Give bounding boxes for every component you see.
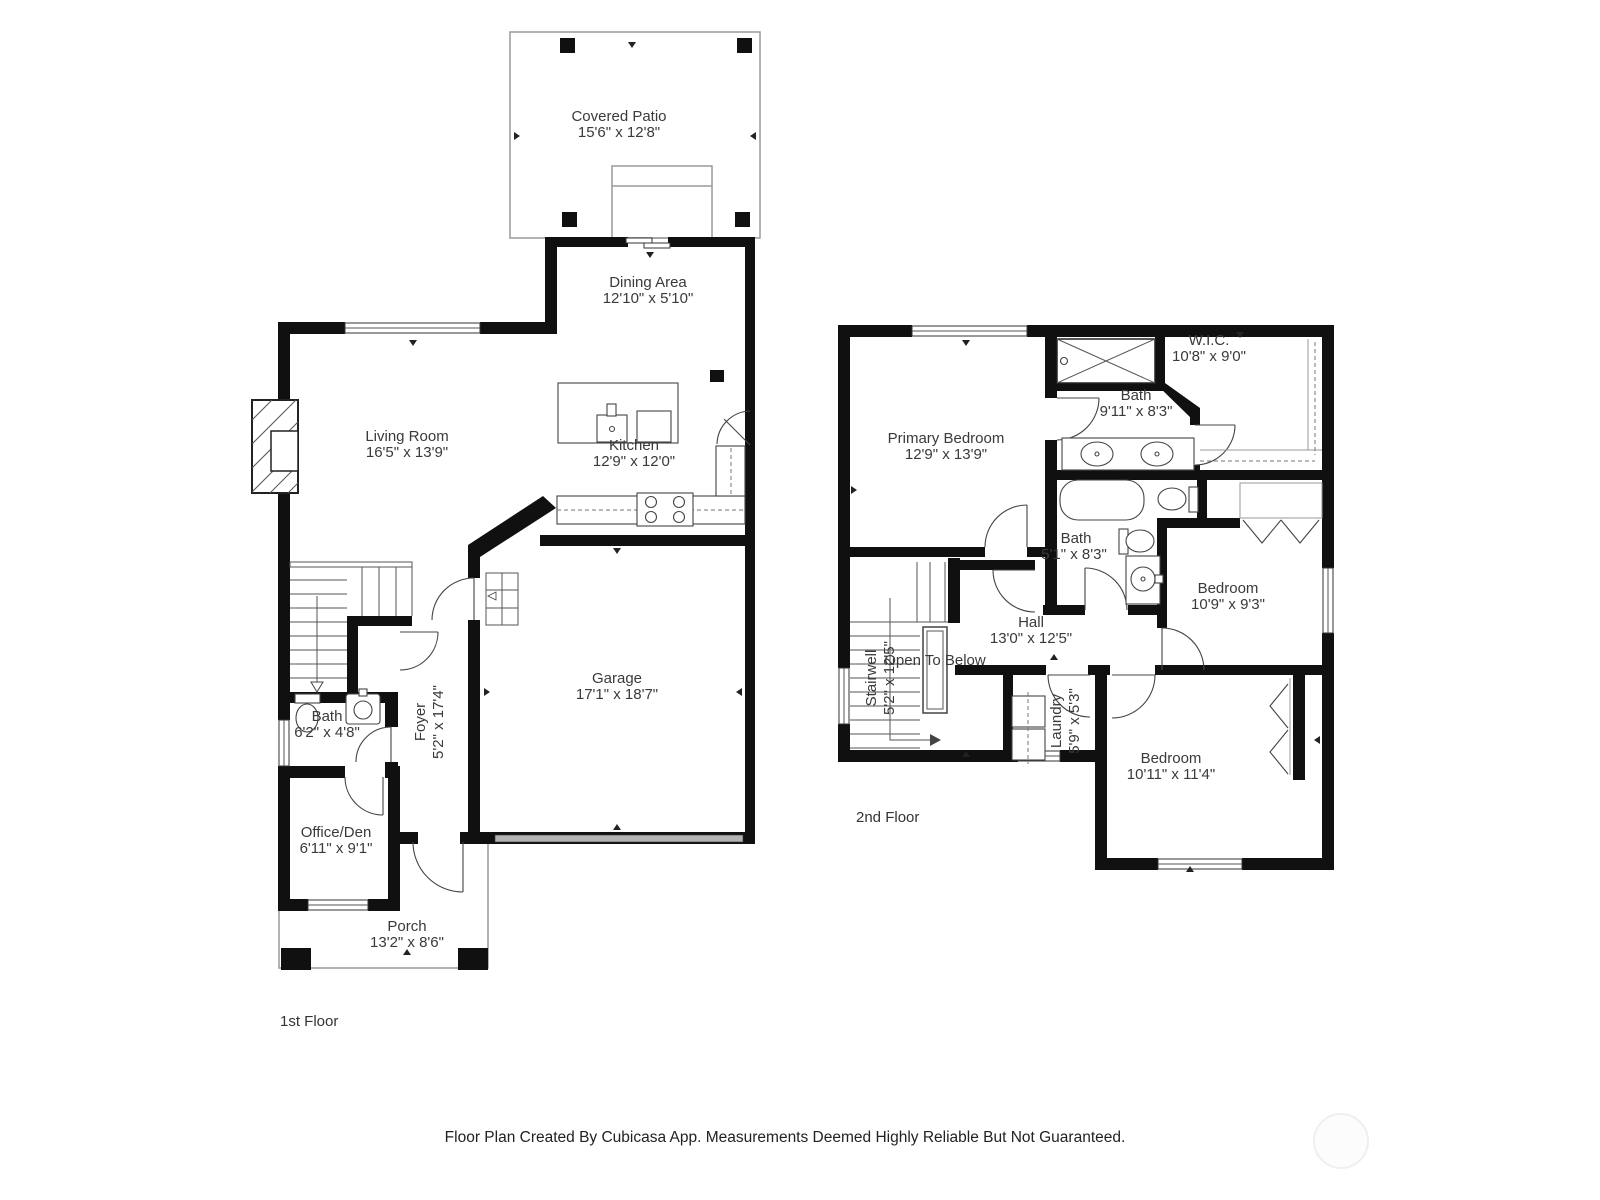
door: [356, 727, 391, 762]
patio-post: [562, 212, 577, 227]
door: [1195, 425, 1235, 465]
room-label-stairwell: Stairwell: [863, 650, 880, 707]
floor1-plan: Covered Patio 15'6" x 12'8" Dining Area …: [252, 32, 760, 1030]
room-dims-wic: 10'8" x 9'0": [1172, 348, 1246, 365]
room-label-office: Office/Den: [301, 824, 372, 841]
sliding-door: [626, 238, 670, 248]
room-dims-hall: 13'0" x 12'5": [990, 630, 1072, 647]
room-dims-bath-lower: 5'1" x 8'3": [1041, 546, 1107, 563]
shower-icon: [1057, 339, 1155, 383]
room-label-garage: Garage: [592, 670, 642, 687]
garage-steps: [486, 573, 518, 625]
stair-arrow: [311, 682, 323, 692]
room-label-living: Living Room: [365, 428, 448, 445]
washer-dryer-icon: [1012, 692, 1045, 764]
floor1-doors: [345, 411, 750, 892]
room-dims-garage: 17'1" x 18'7": [576, 686, 658, 703]
floor-plan-canvas: Covered Patio 15'6" x 12'8" Dining Area …: [0, 0, 1600, 1200]
door: [993, 570, 1035, 612]
door: [413, 842, 463, 892]
door: [432, 578, 474, 620]
window: [839, 668, 849, 724]
window: [308, 900, 368, 910]
door: [1057, 398, 1099, 440]
door: [400, 632, 438, 670]
floor-plan-page: Covered Patio 15'6" x 12'8" Dining Area …: [0, 0, 1600, 1200]
garage-door: [495, 835, 743, 842]
room-dims-office: 6'11" x 9'1": [300, 840, 373, 857]
room-label-wic: W.I.C.: [1189, 332, 1230, 349]
room-label-bath-upper: Bath: [1121, 387, 1152, 404]
room-label-hall: Hall: [1018, 614, 1044, 631]
closet-lower-bedroom: [1270, 678, 1290, 775]
door: [345, 777, 383, 815]
room-label-kitchen: Kitchen: [609, 437, 659, 454]
stair-arrow: [930, 734, 941, 746]
room-dims-dining: 12'10" x 5'10": [603, 290, 694, 307]
floor2-labels: Primary Bedroom 12'9" x 13'9" W.I.C. 10'…: [863, 332, 1265, 783]
room-label-bedroom-upper: Bedroom: [1198, 580, 1259, 597]
room-dims-bath1: 6'2" x 4'8": [294, 724, 360, 741]
room-label-dining: Dining Area: [609, 274, 687, 291]
room-label-bath-lower: Bath: [1061, 530, 1092, 547]
window: [279, 720, 289, 766]
window: [1158, 859, 1242, 869]
stove-icon: [637, 493, 693, 526]
toilet-icon: [1119, 529, 1154, 554]
sink-icon: [346, 689, 380, 724]
watermark-circle: [1314, 1114, 1368, 1168]
window: [1323, 568, 1333, 633]
room-dims-kitchen: 12'9" x 12'0": [593, 453, 675, 470]
fireplace: [252, 400, 298, 493]
floor2-caption: 2nd Floor: [856, 809, 919, 826]
room-label-primary: Primary Bedroom: [888, 430, 1005, 447]
porch-post: [458, 948, 488, 970]
door: [1085, 568, 1127, 610]
room-label-laundry: Laundry: [1048, 693, 1065, 748]
window: [912, 326, 1027, 336]
door: [985, 505, 1027, 547]
room-dims-foyer: 5'2" x 17'4": [430, 685, 447, 759]
patio-post: [737, 38, 752, 53]
window: [345, 323, 480, 333]
toilet-icon: [1158, 487, 1198, 512]
room-label-foyer: Foyer: [412, 703, 429, 741]
sink-icon: [1126, 556, 1163, 604]
room-dims-covered-patio: 15'6" x 12'8": [578, 124, 660, 141]
door: [1112, 675, 1155, 718]
room-dims-bedroom-upper: 10'9" x 9'3": [1191, 596, 1265, 613]
room-label-porch: Porch: [387, 918, 426, 935]
room-dims-porch: 13'2" x 8'6": [370, 934, 444, 951]
floor2-plan: Primary Bedroom 12'9" x 13'9" W.I.C. 10'…: [838, 325, 1334, 872]
room-dims-bedroom-lower: 10'11" x 11'4": [1127, 766, 1215, 783]
double-vanity-icon: [1062, 438, 1194, 470]
room-dims-laundry: 5'9" x 5'3": [1066, 688, 1083, 754]
patio-post: [560, 38, 575, 53]
footer-disclaimer: Floor Plan Created By Cubicasa App. Meas…: [445, 1129, 1126, 1146]
closet-upper-bedroom: [1240, 483, 1322, 543]
open-to-below-label: Open To Below: [884, 652, 986, 669]
room-label-bath1: Bath: [312, 708, 343, 725]
room-dims-primary: 12'9" x 13'9": [905, 446, 987, 463]
bathtub-icon: [1060, 480, 1144, 520]
room-label-covered-patio: Covered Patio: [571, 108, 666, 125]
patio-structure: [612, 166, 712, 238]
door: [1162, 628, 1204, 670]
patio-post: [735, 212, 750, 227]
room-label-bedroom-lower: Bedroom: [1141, 750, 1202, 767]
floor1-walls: [278, 237, 755, 911]
kitchen-island: [558, 383, 678, 443]
porch-post: [281, 948, 311, 970]
room-dims-living: 16'5" x 13'9": [366, 444, 448, 461]
room-dims-bath-upper: 9'11" x 8'3": [1100, 403, 1173, 420]
floor1-caption: 1st Floor: [280, 1013, 338, 1030]
